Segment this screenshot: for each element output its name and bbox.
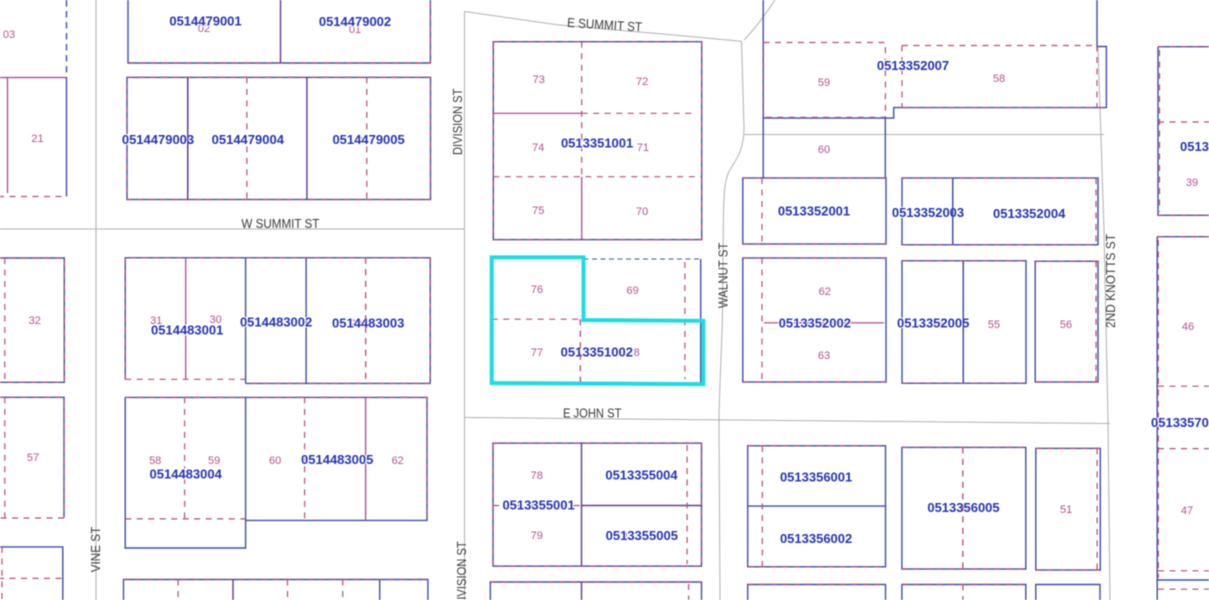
svg-text:78: 78 — [531, 470, 543, 482]
svg-text:0514479005: 0514479005 — [332, 132, 404, 147]
svg-text:79: 79 — [531, 530, 543, 542]
svg-text:60: 60 — [269, 455, 281, 467]
svg-text:0514483004: 0514483004 — [150, 466, 223, 481]
svg-text:VINE ST: VINE ST — [88, 527, 103, 573]
svg-text:DIVISION ST: DIVISION ST — [454, 541, 469, 600]
svg-text:0514479001: 0514479001 — [169, 14, 241, 29]
svg-text:76: 76 — [531, 284, 543, 296]
svg-text:55: 55 — [988, 319, 1000, 331]
svg-text:0513352002: 0513352002 — [779, 315, 851, 330]
svg-text:03: 03 — [3, 29, 15, 41]
svg-text:58: 58 — [993, 73, 1005, 85]
svg-text:56: 56 — [1060, 319, 1072, 331]
svg-text:E JOHN ST: E JOHN ST — [563, 405, 622, 420]
svg-text:0514479004: 0514479004 — [212, 132, 285, 147]
svg-text:0513351001: 0513351001 — [561, 135, 633, 150]
svg-text:21: 21 — [31, 133, 43, 145]
svg-text:0514483005: 0514483005 — [301, 452, 373, 467]
svg-text:57: 57 — [27, 452, 39, 464]
svg-text:75: 75 — [532, 205, 544, 217]
svg-text:0514479003: 0514479003 — [122, 132, 194, 147]
svg-text:62: 62 — [392, 455, 404, 467]
svg-text:0513355004: 0513355004 — [605, 468, 678, 483]
svg-text:72: 72 — [636, 76, 648, 88]
svg-text:63: 63 — [818, 350, 830, 362]
svg-text:70: 70 — [636, 206, 648, 218]
svg-text:59: 59 — [818, 77, 830, 89]
svg-text:0513355005: 0513355005 — [606, 528, 678, 543]
svg-text:0513356002: 0513356002 — [780, 531, 852, 546]
svg-text:DIVISION ST: DIVISION ST — [450, 89, 465, 156]
svg-text:0513352007: 0513352007 — [877, 58, 949, 73]
svg-text:47: 47 — [1181, 505, 1193, 517]
svg-text:0513357001: 0513357001 — [1180, 139, 1209, 154]
svg-text:0513357004: 0513357004 — [1151, 415, 1209, 430]
svg-text:46: 46 — [1182, 321, 1194, 333]
svg-text:69: 69 — [626, 285, 638, 297]
svg-text:0514483003: 0514483003 — [332, 315, 404, 330]
svg-text:0513355001: 0513355001 — [502, 497, 574, 512]
svg-text:0514483002: 0514483002 — [240, 314, 312, 329]
svg-text:62: 62 — [819, 286, 831, 298]
svg-text:51: 51 — [1060, 504, 1072, 516]
svg-text:59: 59 — [208, 455, 220, 467]
svg-text:77: 77 — [531, 347, 543, 359]
svg-text:32: 32 — [29, 315, 41, 327]
svg-text:W SUMMIT ST: W SUMMIT ST — [241, 216, 319, 231]
svg-text:2ND KNOTTS ST: 2ND KNOTTS ST — [1103, 234, 1118, 328]
svg-text:74: 74 — [532, 142, 544, 154]
svg-text:0513356001: 0513356001 — [780, 470, 852, 485]
svg-text:58: 58 — [149, 455, 161, 467]
svg-text:71: 71 — [637, 142, 649, 154]
svg-text:60: 60 — [818, 144, 830, 156]
svg-text:0514479002: 0514479002 — [319, 14, 391, 29]
svg-text:39: 39 — [1186, 177, 1198, 189]
svg-text:0513352005: 0513352005 — [897, 316, 969, 331]
svg-text:73: 73 — [533, 74, 545, 86]
svg-text:0514483001: 0514483001 — [151, 323, 223, 338]
svg-text:WALNUT ST: WALNUT ST — [716, 243, 731, 309]
svg-text:0513351002: 0513351002 — [561, 345, 633, 360]
svg-text:0513352004: 0513352004 — [993, 206, 1066, 221]
svg-text:0513352001: 0513352001 — [778, 204, 850, 219]
